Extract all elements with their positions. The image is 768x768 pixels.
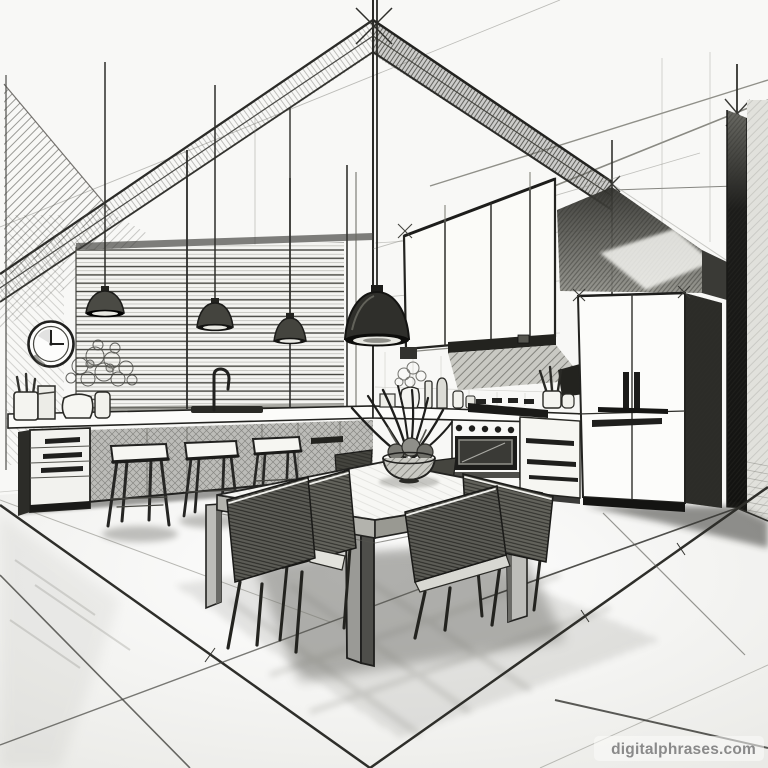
drawer-unit	[18, 428, 90, 516]
watermark-text: digitalphrases.com	[611, 741, 756, 758]
bottle	[437, 378, 447, 408]
fridge-handle	[623, 372, 629, 410]
flower-vase	[62, 394, 92, 418]
utensil-cup	[14, 374, 38, 420]
sketch-canvas: Pencil sketch of a modern kitchen interi…	[0, 0, 768, 768]
stove-knobs	[456, 425, 514, 433]
watermark: digitalphrases.com	[594, 736, 764, 761]
refrigerator	[573, 286, 722, 512]
carton	[38, 386, 55, 419]
upper-cabinets	[398, 172, 555, 352]
wall-shelf-box	[400, 347, 417, 359]
left-wall	[6, 62, 373, 465]
table-leg	[206, 504, 221, 608]
hood-light	[518, 335, 529, 343]
wall-clock	[29, 322, 74, 367]
window-blinds	[76, 150, 373, 415]
fridge-handle	[634, 372, 640, 410]
sink	[191, 406, 263, 413]
flower-vase-right	[395, 362, 426, 408]
kitchen-sketch-drawing: digitalphrases.com	[0, 0, 768, 768]
